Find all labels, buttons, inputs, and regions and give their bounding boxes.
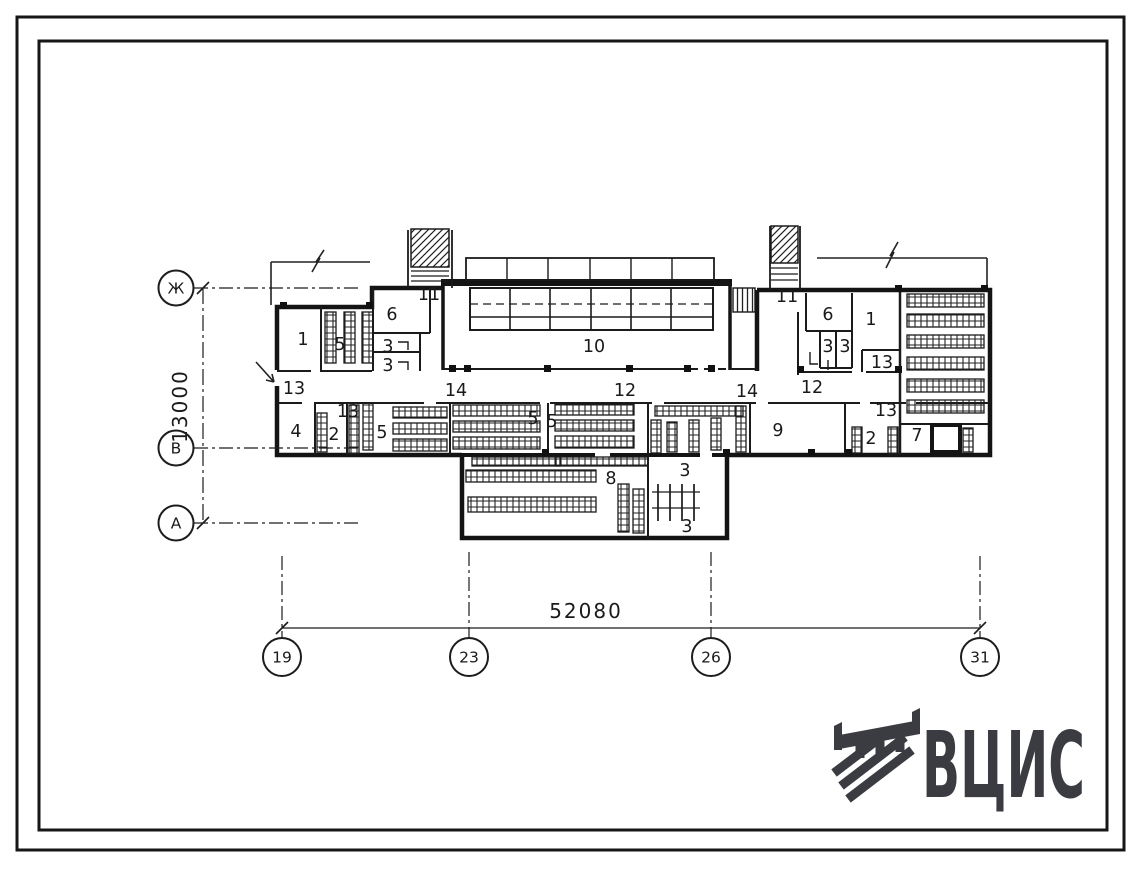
lift-shaft [932,425,960,452]
column [280,302,287,309]
left-canopy-break [312,250,324,272]
rack [907,314,984,327]
rack [655,406,743,416]
rack [689,420,699,452]
room-label-3: 3 [839,337,850,357]
table-dividers [470,288,713,330]
room-label-3: 3 [681,517,692,537]
room-label-3: 3 [822,337,833,357]
room-label-1: 1 [865,310,876,330]
rack [344,312,355,363]
coat-racks [652,484,700,521]
room-label-5: 5 [527,409,538,429]
column [542,449,549,456]
column [895,366,902,373]
coat-rack-posts [658,484,694,521]
drawing-sheet: 13000 52080 ЖВА19232631 1563311134213514… [0,0,1139,869]
room-label-13: 13 [337,402,359,422]
rack [907,357,984,370]
rack [472,457,560,466]
column [808,449,815,456]
rack [618,484,629,532]
room-label-3: 3 [382,356,393,376]
axis-label-А: А [171,515,182,533]
rack [555,404,634,415]
left-canopy [271,262,370,305]
room-label-5: 5 [376,423,387,443]
rack [393,423,447,434]
room-label-13: 13 [871,353,893,373]
room-label-7: 7 [911,426,922,446]
right-canopy [817,258,987,288]
room-label-14: 14 [736,382,758,402]
column [684,365,691,372]
axis-label-31: 31 [970,649,990,667]
room-label-5: 5 [546,412,557,432]
rack [555,420,634,431]
rack [453,437,540,449]
axis-label-26: 26 [701,649,721,667]
axis-label-В: В [171,440,182,458]
room-label-8: 8 [605,469,616,489]
room-label-3: 3 [382,337,393,357]
room-label-11: 11 [776,287,798,307]
rack [907,294,984,307]
rack [633,489,644,533]
axis-label-23: 23 [459,649,479,667]
column [797,366,804,373]
coat-rack-bars [652,492,700,508]
room-label-6: 6 [386,305,397,325]
lift-side-rack [963,428,973,452]
axis-label-Ж: Ж [168,280,185,298]
column [895,285,902,292]
rack [555,436,634,448]
column [366,302,373,309]
room-label-2: 2 [865,429,876,449]
room-label-9: 9 [772,421,783,441]
entrance-arrow [256,362,274,382]
right-chimney-hatch [771,226,798,263]
room-label-2: 2 [328,425,339,445]
room-label-3: 3 [679,461,690,481]
hall-fixtures [466,258,714,330]
room-label-1: 1 [297,330,308,350]
rack [468,497,596,512]
column [626,365,633,372]
logo-text: ВЦИС [922,712,1085,819]
column [845,449,852,456]
left-chimney-hatch [411,229,449,267]
column [708,365,715,372]
rack [556,457,648,466]
rack [317,413,327,452]
axis-label-19: 19 [272,649,292,667]
room-label-12: 12 [614,381,636,401]
rack [393,439,447,451]
rack [393,407,447,418]
rack [888,427,898,455]
rack [711,418,721,450]
column [981,285,988,292]
rack [362,312,373,363]
rack [852,427,862,453]
column [464,365,471,372]
hatched-sh-emblem-icon [834,708,920,799]
room-label-11: 11 [418,285,440,305]
room-label-6: 6 [822,305,833,325]
logo-bar-flick-right [912,708,920,734]
rack [667,422,677,452]
horizontal-dimension-value: 52080 [549,599,623,623]
basement-grille [733,288,755,312]
right-stair-treads [771,268,798,280]
room-label-10: 10 [583,337,605,357]
room-label-14: 14 [445,381,467,401]
rack [466,470,596,482]
room-label-4: 4 [290,422,301,442]
room-label-13: 13 [283,379,305,399]
room-label-13: 13 [875,401,897,421]
floor-plan-drawing: 13000 52080 ЖВА19232631 1563311134213514… [0,0,1139,869]
room-label-12: 12 [801,378,823,398]
room-label-5: 5 [334,335,345,355]
rack [907,379,984,392]
column [544,365,551,372]
right-canopy-break [886,242,898,268]
rack [736,406,746,452]
vcis-logo: ВЦИС [834,708,1085,819]
column [449,365,456,372]
rack [363,403,373,450]
rack [651,420,661,453]
column [723,449,730,456]
rack [907,335,984,348]
window-mullions [507,258,672,280]
rack [907,400,984,413]
bottom-axis-extension-lines [282,552,980,638]
door-swing-marks [398,342,828,370]
logo-bar-flick-left [834,722,842,750]
